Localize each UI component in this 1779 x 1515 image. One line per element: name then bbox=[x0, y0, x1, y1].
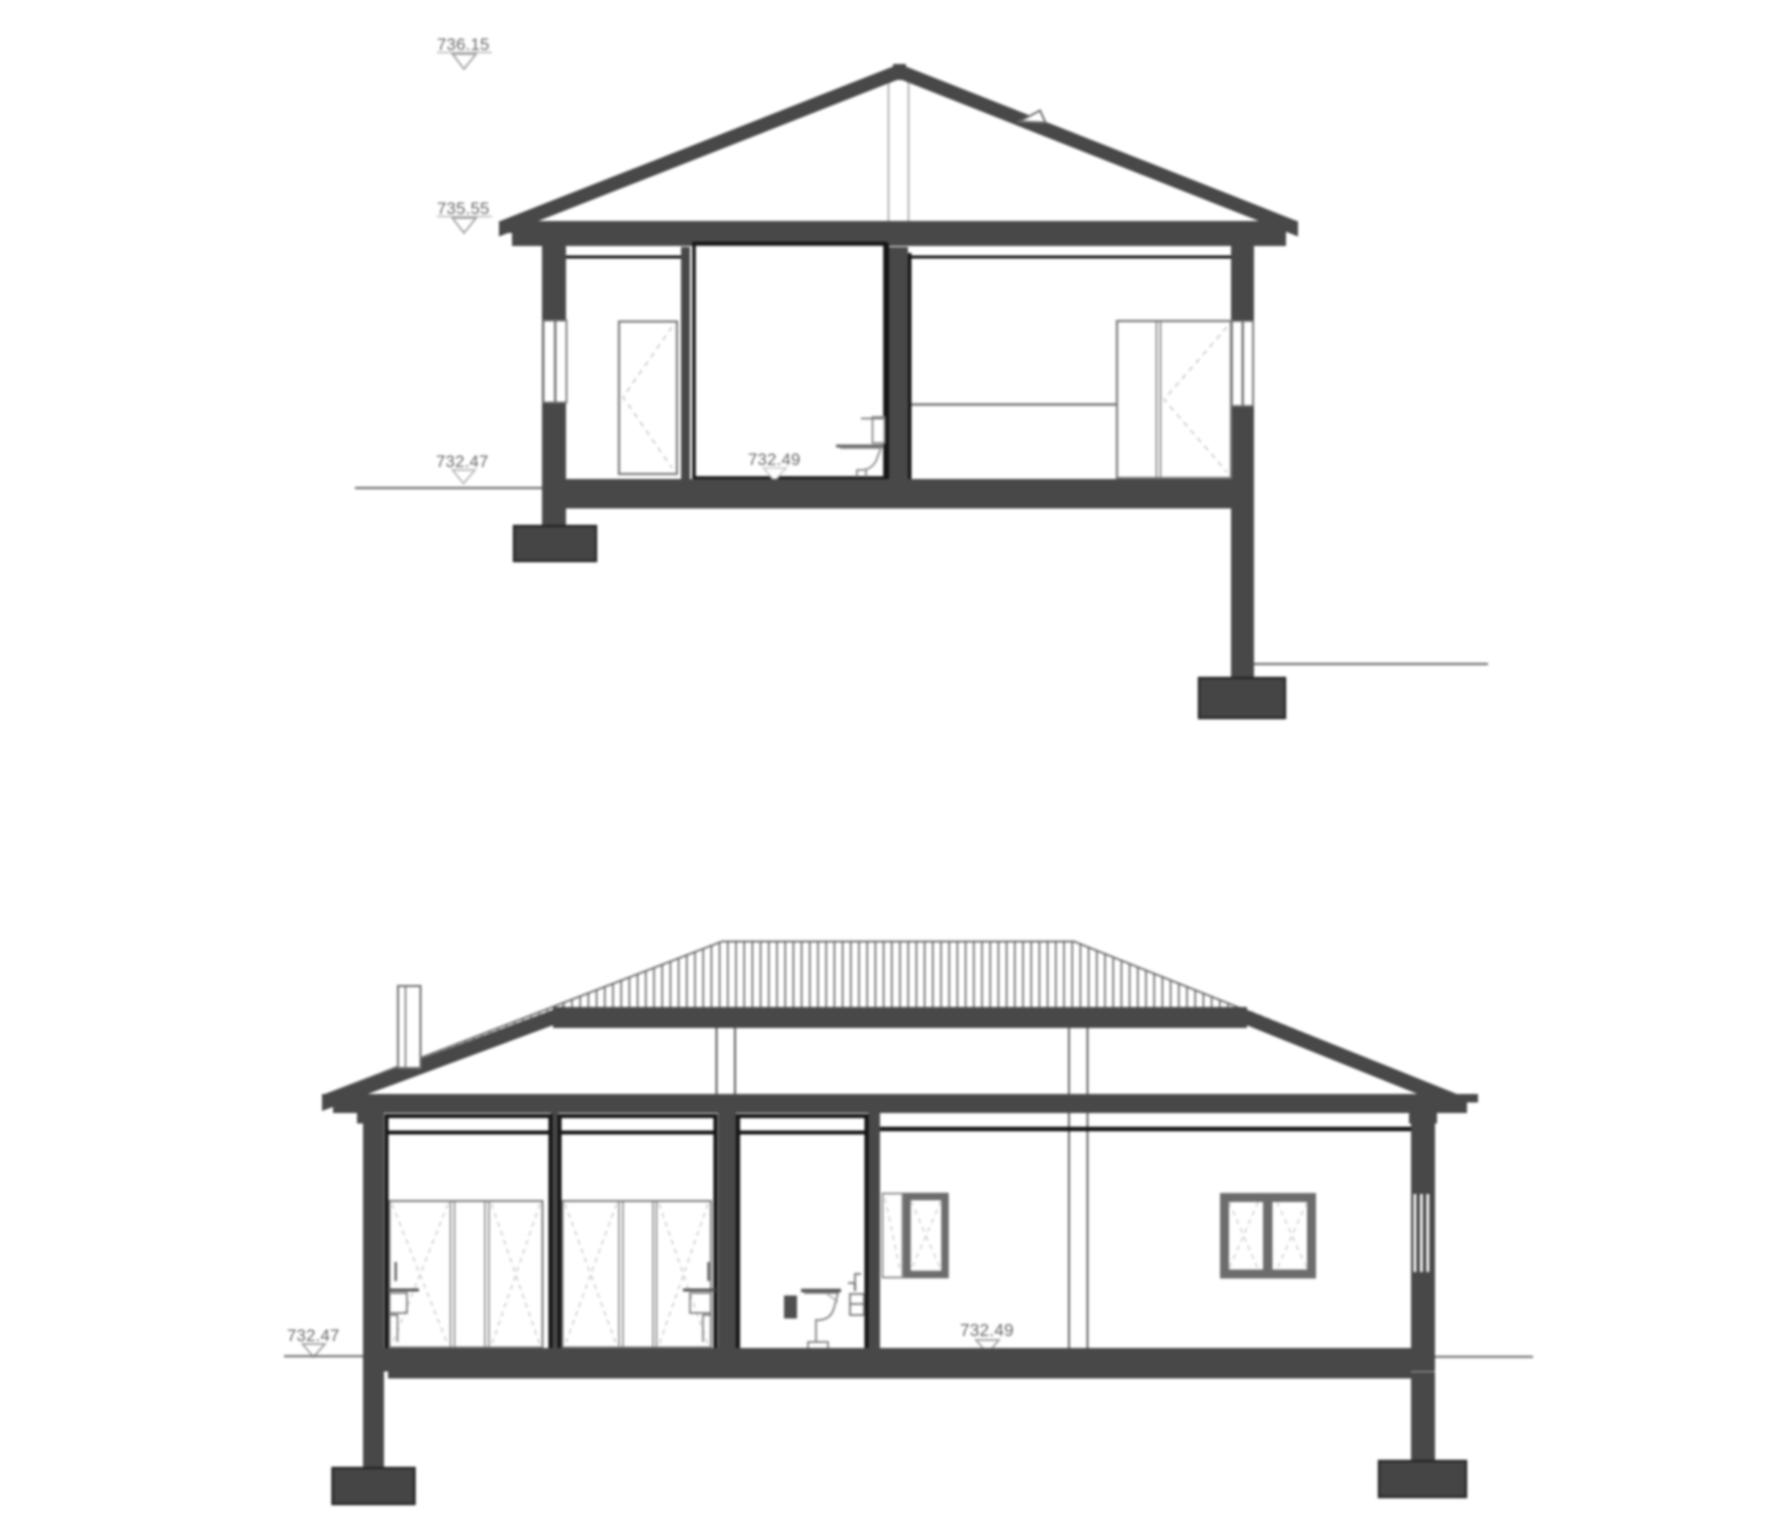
svg-text:735.55: 735.55 bbox=[437, 199, 490, 218]
svg-text:732.47: 732.47 bbox=[287, 1326, 340, 1345]
svg-text:736.15: 736.15 bbox=[437, 35, 490, 54]
svg-text:732.49: 732.49 bbox=[960, 1320, 1014, 1340]
svg-text:732.49: 732.49 bbox=[748, 450, 801, 469]
svg-text:732.47: 732.47 bbox=[436, 452, 489, 471]
